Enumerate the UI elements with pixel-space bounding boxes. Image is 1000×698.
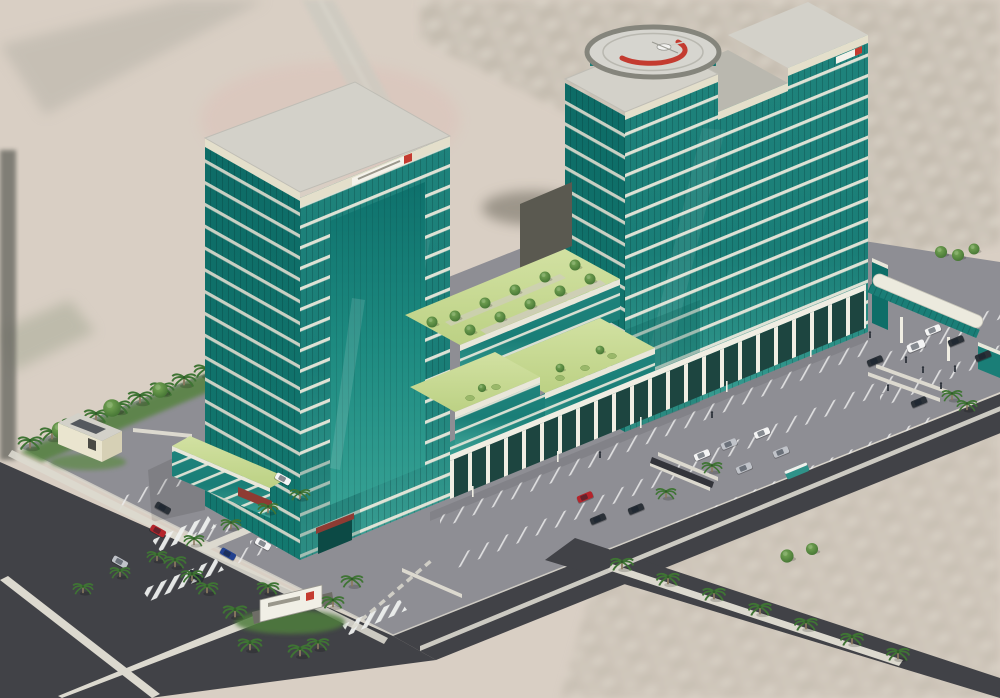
pedestrian — [711, 411, 713, 418]
helipad-disc — [587, 27, 719, 77]
pedestrian — [954, 365, 956, 372]
left-tower: Left teal glass office tower with banded… — [172, 82, 450, 560]
utility-hedge — [50, 454, 126, 470]
bridge-support — [900, 317, 903, 343]
garden-shrub-icon — [556, 375, 565, 380]
garden-shrub-icon — [492, 384, 501, 389]
light-pole — [640, 417, 642, 428]
pedestrian — [599, 451, 601, 458]
architectural-rendering: Aerial 3D architectural rendering: twin … — [0, 0, 1000, 698]
pedestrian — [940, 382, 942, 389]
garden-shrub-icon — [581, 365, 590, 370]
left-tower-atrium-mullions — [330, 182, 425, 505]
rendering-stage: Aerial 3D architectural rendering: twin … — [0, 0, 1000, 698]
pedestrian — [905, 356, 907, 363]
light-pole — [726, 381, 728, 392]
light-pole — [557, 451, 559, 462]
pedestrian — [922, 366, 924, 373]
garden-shrub-icon — [608, 353, 617, 358]
dark-left-edge-road — [0, 150, 16, 460]
garden-shrub-icon — [466, 395, 475, 400]
light-pole — [810, 346, 812, 357]
pedestrian — [887, 384, 889, 391]
pedestrian — [869, 331, 871, 338]
helipad: Circular rooftop helipad with red cresce… — [587, 27, 719, 77]
light-pole — [472, 486, 474, 497]
